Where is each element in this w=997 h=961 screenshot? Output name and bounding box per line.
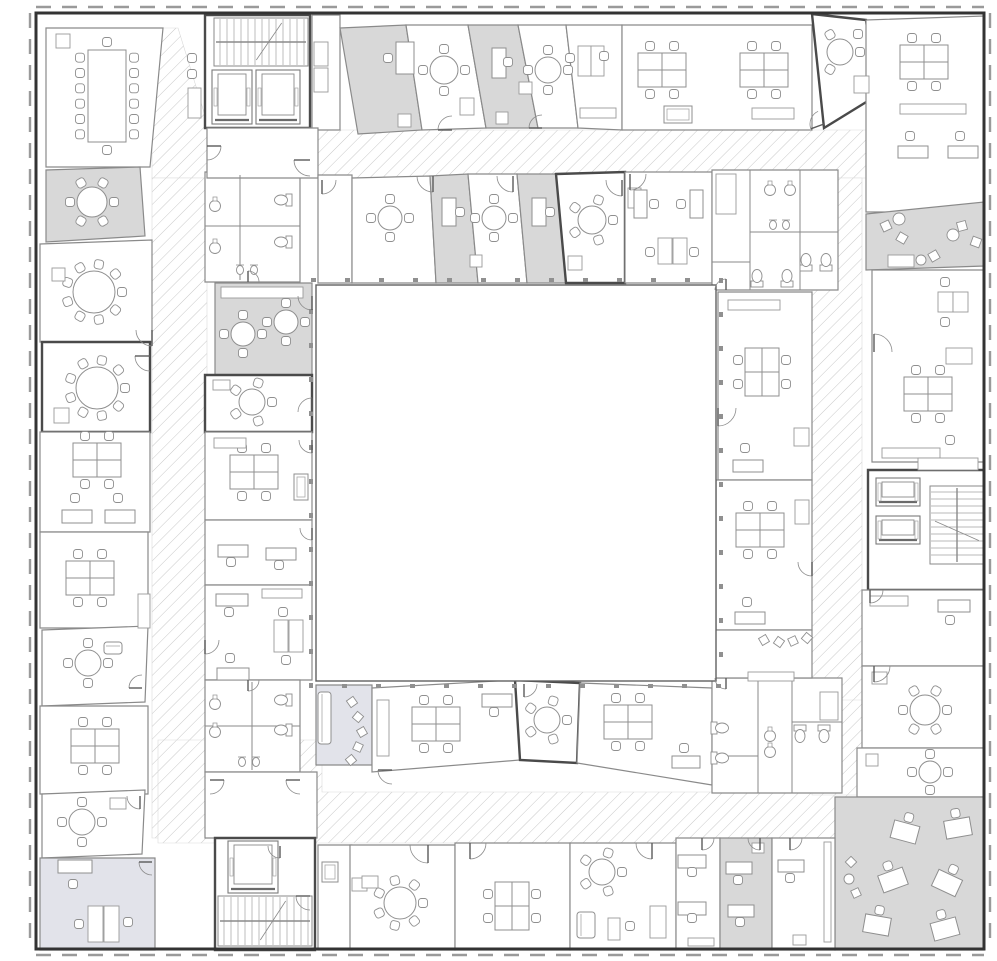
sink	[210, 727, 221, 738]
chair	[94, 314, 104, 324]
sink-tap	[768, 181, 772, 185]
chair	[524, 66, 533, 75]
chair	[225, 608, 234, 617]
chair	[532, 914, 541, 923]
desk	[66, 561, 90, 578]
sink	[785, 185, 796, 196]
chair	[389, 920, 400, 931]
sofa	[104, 642, 122, 654]
chair	[76, 130, 85, 139]
chair	[912, 366, 921, 375]
chair	[741, 444, 750, 453]
sideboard	[496, 112, 508, 124]
desk	[928, 377, 952, 394]
sideboard	[866, 754, 878, 766]
round-table	[589, 859, 615, 885]
desk	[762, 372, 779, 396]
chair	[748, 90, 757, 99]
flex-desk-top	[863, 914, 892, 936]
sideboard	[716, 174, 736, 214]
chair	[220, 330, 229, 339]
chair	[636, 742, 645, 751]
chair	[66, 198, 75, 207]
toilet	[275, 694, 293, 706]
chair	[626, 922, 635, 931]
desk	[73, 460, 97, 477]
desk	[760, 530, 784, 547]
chair	[275, 561, 284, 570]
chair	[744, 502, 753, 511]
chair	[856, 48, 865, 57]
chair	[389, 875, 400, 886]
desk	[726, 862, 752, 874]
desk	[948, 146, 978, 158]
round-table	[482, 206, 506, 230]
chair	[130, 99, 139, 108]
beanbag-chair	[956, 220, 967, 231]
toilet-bowl	[819, 730, 829, 743]
chair	[484, 890, 493, 899]
desk	[760, 513, 784, 530]
chair	[440, 87, 449, 96]
round-table	[274, 310, 298, 334]
elevator	[256, 70, 300, 124]
desk	[762, 348, 779, 372]
desk	[764, 53, 788, 70]
chair	[926, 786, 935, 795]
chair	[734, 876, 743, 885]
chair	[419, 66, 428, 75]
desk	[495, 882, 512, 906]
chair	[690, 248, 699, 257]
chair	[950, 808, 960, 818]
chair	[268, 398, 277, 407]
chair	[440, 45, 449, 54]
chair	[386, 233, 395, 242]
desk	[512, 906, 529, 930]
chair	[490, 233, 499, 242]
desk	[740, 70, 764, 87]
round-table	[231, 322, 255, 346]
chair	[908, 768, 917, 777]
urinal	[770, 221, 777, 230]
sideboard	[870, 596, 908, 606]
sideboard	[110, 798, 126, 809]
urinal	[237, 266, 244, 275]
round-table	[535, 57, 561, 83]
round-table	[76, 367, 118, 409]
chair	[768, 502, 777, 511]
desk	[678, 855, 706, 868]
chair	[98, 550, 107, 559]
chair	[544, 46, 553, 55]
desk	[218, 545, 248, 557]
sink-tap	[768, 727, 772, 731]
chair	[563, 716, 572, 725]
desk	[628, 705, 652, 722]
chair	[124, 918, 133, 927]
chair	[75, 920, 84, 929]
desk	[690, 190, 703, 218]
desk	[638, 53, 662, 70]
desk	[482, 694, 512, 707]
desk	[230, 472, 254, 489]
desk	[217, 668, 249, 680]
sideboard	[214, 438, 246, 448]
round-table	[827, 39, 853, 65]
pouf	[947, 229, 959, 241]
sideboard	[314, 68, 328, 92]
pouf	[916, 255, 926, 265]
sideboard	[795, 500, 809, 524]
chair	[279, 608, 288, 617]
round-table	[534, 707, 560, 733]
courtyard	[316, 285, 716, 681]
chair	[282, 299, 291, 308]
chair	[114, 494, 123, 503]
chair	[456, 208, 465, 217]
chair	[386, 195, 395, 204]
chair	[262, 444, 271, 453]
toilet	[711, 722, 729, 734]
desk	[66, 578, 90, 595]
desk	[900, 62, 924, 79]
chair	[98, 598, 107, 607]
chair	[79, 718, 88, 727]
chair	[956, 132, 965, 141]
desk	[230, 455, 254, 472]
desk	[662, 70, 686, 87]
chair	[130, 53, 139, 62]
printer	[664, 106, 692, 123]
desk	[97, 460, 121, 477]
sofa	[318, 692, 331, 744]
chair	[670, 42, 679, 51]
urinal	[783, 221, 790, 230]
sideboard	[882, 448, 940, 458]
sideboard	[568, 256, 582, 270]
sideboard	[673, 238, 687, 264]
chair	[71, 494, 80, 503]
desk	[764, 70, 788, 87]
chair	[912, 414, 921, 423]
toilet-bowl	[801, 254, 811, 267]
chair	[79, 766, 88, 775]
desk	[736, 530, 760, 547]
toilet	[711, 752, 729, 764]
chair	[544, 86, 553, 95]
round-table	[578, 206, 606, 234]
flex-desk-top	[944, 817, 973, 839]
chair	[105, 480, 114, 489]
chair	[188, 70, 197, 79]
sideboard	[398, 114, 411, 127]
printer	[294, 474, 308, 500]
chair	[130, 130, 139, 139]
desk	[628, 722, 652, 739]
chair	[74, 550, 83, 559]
chair	[76, 115, 85, 124]
sideboard	[377, 700, 389, 756]
chair	[490, 708, 499, 717]
desk	[71, 746, 95, 763]
sink	[765, 747, 776, 758]
desk	[904, 394, 928, 411]
sink	[210, 699, 221, 710]
chair	[564, 66, 573, 75]
sideboard	[470, 255, 482, 267]
chair	[743, 598, 752, 607]
chair	[282, 337, 291, 346]
chair	[104, 659, 113, 668]
desk	[662, 53, 686, 70]
desk	[97, 443, 121, 460]
desk	[924, 45, 948, 62]
chair	[420, 744, 429, 753]
corridor-area	[152, 178, 207, 838]
chair	[612, 694, 621, 703]
desk	[532, 198, 546, 226]
sideboard	[824, 842, 831, 942]
chair	[239, 311, 248, 320]
sideboard	[900, 104, 966, 114]
round-table	[384, 887, 416, 919]
desk	[728, 905, 754, 917]
round-table	[77, 187, 107, 217]
sideboard	[918, 458, 978, 470]
chair	[97, 355, 107, 365]
desk	[442, 198, 456, 226]
chair	[618, 868, 627, 877]
sideboard	[138, 594, 150, 628]
chair	[105, 432, 114, 441]
desk	[778, 860, 804, 872]
chair	[239, 349, 248, 358]
sideboard	[953, 292, 968, 312]
sideboard	[88, 906, 103, 942]
chair	[936, 366, 945, 375]
desk	[736, 513, 760, 530]
toilet	[275, 236, 293, 248]
desk	[928, 394, 952, 411]
sideboard	[213, 380, 230, 390]
sideboard	[519, 82, 532, 94]
urinal	[239, 758, 246, 767]
chair	[744, 550, 753, 559]
toilet	[275, 724, 293, 736]
chair	[74, 598, 83, 607]
toilet	[818, 725, 830, 743]
chair	[936, 414, 945, 423]
desk	[254, 455, 278, 472]
toilet-bowl	[275, 195, 288, 205]
chair	[646, 90, 655, 99]
desk	[733, 460, 763, 472]
chair	[854, 30, 863, 39]
desk	[254, 472, 278, 489]
chair	[118, 288, 127, 297]
toilet	[751, 270, 763, 288]
chair	[227, 558, 236, 567]
chair	[768, 550, 777, 559]
chair	[677, 200, 686, 209]
sideboard	[104, 906, 119, 942]
chair	[943, 706, 952, 715]
chair	[566, 54, 575, 63]
chair	[532, 890, 541, 899]
sideboard	[591, 46, 604, 76]
toilet-bowl	[752, 270, 762, 283]
sideboard	[794, 428, 809, 446]
sideboard	[188, 88, 201, 118]
chair	[734, 356, 743, 365]
desk	[900, 45, 924, 62]
sideboard	[52, 268, 65, 281]
chair	[98, 818, 107, 827]
round-table	[910, 695, 940, 725]
room-room-m0	[318, 175, 352, 283]
sink	[210, 243, 221, 254]
toilet-bowl	[795, 730, 805, 743]
chair	[546, 208, 555, 217]
chair	[688, 914, 697, 923]
toilet-bowl	[275, 237, 288, 247]
desk	[638, 70, 662, 87]
desk	[904, 377, 928, 394]
sideboard	[608, 918, 620, 940]
chair	[188, 54, 197, 63]
desk	[634, 190, 647, 218]
toilet-bowl	[275, 725, 288, 735]
chair	[130, 115, 139, 124]
sink	[210, 201, 221, 212]
sideboard	[580, 108, 616, 118]
chair	[941, 318, 950, 327]
chair	[76, 69, 85, 78]
desk	[924, 62, 948, 79]
chair	[688, 868, 697, 877]
sink	[765, 731, 776, 742]
round-table	[378, 206, 402, 230]
sideboard	[314, 42, 328, 66]
chair	[444, 744, 453, 753]
sideboard	[56, 34, 70, 48]
sink-tap	[768, 743, 772, 747]
chair	[76, 53, 85, 62]
chair	[504, 58, 513, 67]
chair	[103, 146, 112, 155]
desk	[436, 724, 460, 741]
chair	[772, 90, 781, 99]
desk	[95, 746, 119, 763]
chair	[941, 278, 950, 287]
sideboard	[688, 938, 714, 946]
desk	[735, 612, 765, 624]
pouf	[844, 874, 854, 884]
chair	[646, 42, 655, 51]
chair	[420, 696, 429, 705]
chair	[490, 195, 499, 204]
chair	[936, 909, 947, 920]
chair	[908, 82, 917, 91]
toilet	[820, 254, 832, 272]
chair	[262, 492, 271, 501]
desk	[95, 729, 119, 746]
round-table	[239, 389, 265, 415]
desk	[216, 594, 248, 606]
sideboard	[221, 287, 303, 298]
chair	[405, 214, 414, 223]
desk	[396, 42, 414, 74]
desk	[90, 578, 114, 595]
chair	[84, 639, 93, 648]
desk	[90, 561, 114, 578]
chair	[509, 214, 518, 223]
sofa	[577, 912, 595, 938]
toilet-bowl	[275, 695, 288, 705]
chair	[908, 34, 917, 43]
chair	[58, 818, 67, 827]
chair	[680, 744, 689, 753]
desk	[266, 548, 296, 560]
desk	[58, 860, 92, 873]
chair	[81, 432, 90, 441]
chair	[110, 198, 119, 207]
room-vestibule-nw	[207, 128, 318, 178]
chair	[782, 380, 791, 389]
chair	[81, 480, 90, 489]
chair	[69, 880, 78, 889]
chair	[748, 42, 757, 51]
chair	[97, 410, 107, 420]
sink-tap	[213, 723, 217, 727]
chair	[932, 82, 941, 91]
desk	[412, 724, 436, 741]
chair	[646, 248, 655, 257]
chair	[772, 42, 781, 51]
chair	[76, 99, 85, 108]
sideboard	[658, 238, 672, 264]
chair	[600, 52, 609, 61]
chair	[84, 679, 93, 688]
sideboard	[854, 76, 869, 93]
chair	[612, 742, 621, 751]
chair	[78, 798, 87, 807]
desk	[62, 510, 92, 523]
chair	[121, 384, 130, 393]
chair	[736, 918, 745, 927]
sink-tap	[213, 695, 217, 699]
desk	[745, 372, 762, 396]
desk	[745, 348, 762, 372]
round-table	[75, 650, 101, 676]
sideboard	[728, 300, 780, 310]
chair	[786, 874, 795, 883]
toilet	[794, 725, 806, 743]
sideboard	[289, 620, 303, 652]
chair	[258, 330, 267, 339]
chair	[64, 659, 73, 668]
round-table	[430, 56, 458, 84]
sink	[765, 185, 776, 196]
toilet-bowl	[782, 270, 792, 283]
chair	[103, 718, 112, 727]
desk	[71, 729, 95, 746]
chair	[282, 656, 291, 665]
room-office-b4	[720, 838, 772, 950]
sideboard	[460, 98, 474, 115]
chair	[874, 905, 884, 915]
